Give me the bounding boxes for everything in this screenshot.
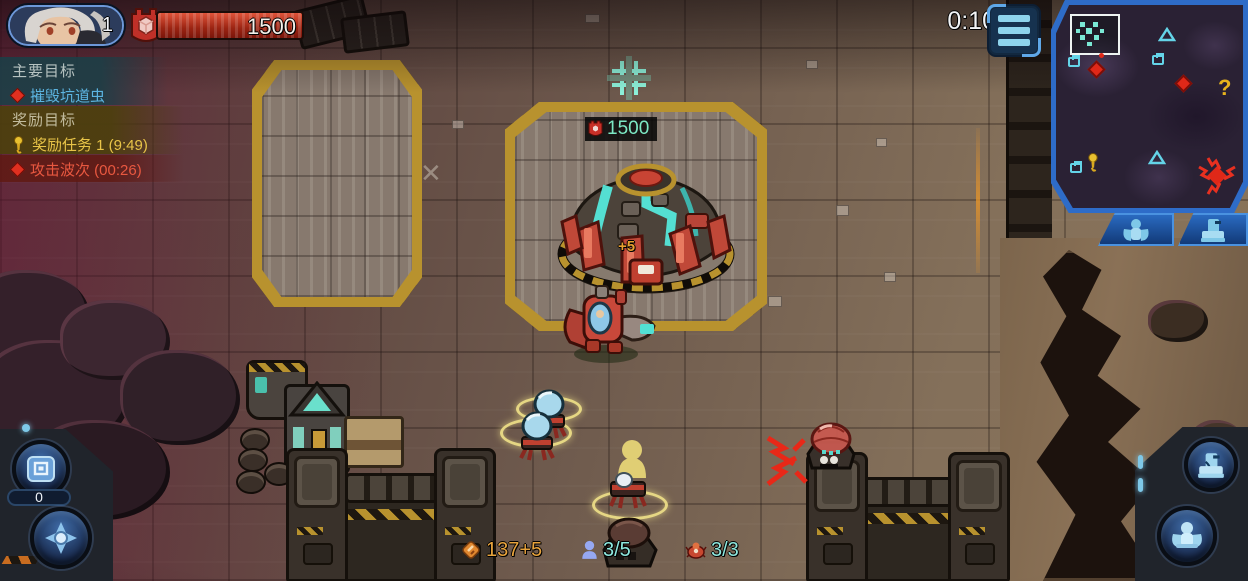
player-level: 1 xyxy=(102,14,113,37)
train-unit-button[interactable] xyxy=(1157,506,1217,566)
income-float-text: +5 xyxy=(618,238,635,255)
objective-diamond-icon xyxy=(10,88,26,104)
hamburger-icon xyxy=(998,15,1030,46)
player-avatar[interactable]: 1 xyxy=(8,5,124,46)
menu-button[interactable] xyxy=(987,4,1041,57)
quest-pin-icon xyxy=(12,136,25,154)
minimap-enemy-icon xyxy=(1174,74,1192,92)
objective-main-task: 摧毁坑道虫 xyxy=(30,85,105,106)
build-structure-button[interactable] xyxy=(1184,438,1238,492)
minimap-boss-icon xyxy=(1196,155,1238,197)
diamond-compass-icon xyxy=(44,521,78,555)
crate-count-value: 0 xyxy=(35,489,43,505)
objective-main-block: 主要目标 摧毁坑道虫 xyxy=(0,57,168,105)
panel-light xyxy=(22,424,30,432)
minimap-structure-icon xyxy=(1152,55,1164,65)
player-hp-bar: 1500 xyxy=(156,11,304,40)
base-hp-label: 1500 xyxy=(585,117,657,141)
squad-value: 3/3 xyxy=(711,539,739,562)
base-hp-value: 1500 xyxy=(607,118,649,140)
mech-icon xyxy=(1121,217,1151,243)
squad-unit-icon xyxy=(685,541,707,559)
hazard-chip xyxy=(2,556,41,564)
minerals-value: 137+5 xyxy=(486,539,542,562)
minimap-quest-pin-icon xyxy=(1086,153,1100,172)
game-screen: ✕ xyxy=(0,0,1248,581)
minimap-base-icon xyxy=(1072,16,1118,53)
minimap-structure-icon xyxy=(1070,163,1082,173)
player-hp-value: 1500 xyxy=(247,14,296,40)
objective-wave-task: 攻击波次 (00:26) xyxy=(30,159,142,180)
base-hp-shield-icon xyxy=(587,119,604,139)
panel-light xyxy=(1138,455,1143,469)
mineral-icon xyxy=(460,539,482,561)
minimap-tent-icon xyxy=(1148,150,1166,165)
objective-wave-block: 攻击波次 (00:26) xyxy=(0,155,184,182)
crate-count-chip: 0 xyxy=(7,489,71,506)
minimap-question-mark: ? xyxy=(1218,75,1231,101)
objective-diamond-icon xyxy=(10,162,26,178)
minimap-tent-icon xyxy=(1158,27,1176,42)
objective-bonus-header: 奖励目标 xyxy=(12,109,174,130)
minimap[interactable]: ? xyxy=(1051,0,1248,213)
objective-bonus-task: 奖励任务 1 (9:49) xyxy=(32,134,148,155)
panel-light xyxy=(1138,478,1143,492)
population-value: 3/5 xyxy=(603,539,631,562)
deploy-button[interactable] xyxy=(30,507,92,569)
minimap-enemy-icon xyxy=(1087,60,1105,78)
minimap-structure-icon xyxy=(1068,57,1080,67)
soldier-icon xyxy=(1170,520,1204,552)
population-icon xyxy=(580,540,599,560)
factory-icon xyxy=(1196,451,1226,479)
objective-bonus-block: 奖励目标 奖励任务 1 (9:49) xyxy=(0,106,184,154)
objective-main-header: 主要目标 xyxy=(12,60,158,81)
minimap-terrain: ? xyxy=(1056,5,1243,208)
building-icon xyxy=(1199,217,1227,243)
minimap-dot xyxy=(1099,53,1104,58)
crate-icon xyxy=(26,455,56,483)
resource-bar: 137+5 3/5 3/3 xyxy=(460,536,790,564)
minimap-viewport-indicator xyxy=(1070,14,1120,55)
